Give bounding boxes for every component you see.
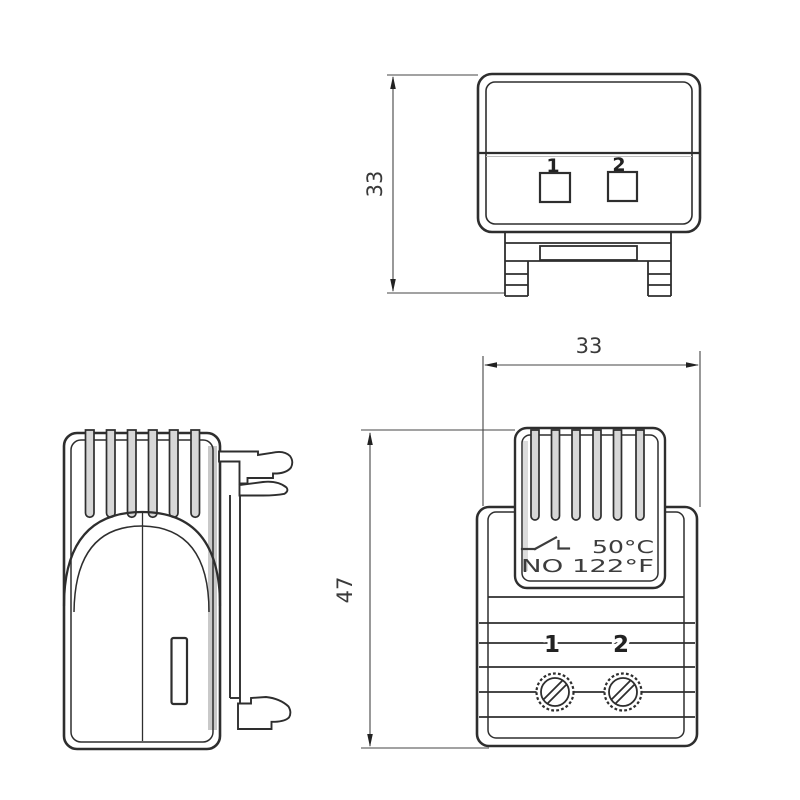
rating-fahrenheit-label: NO 122°F bbox=[521, 556, 654, 577]
rating-celsius-label: 50°C bbox=[592, 537, 654, 558]
arrowhead-up bbox=[390, 76, 396, 89]
bottom-clip-hook bbox=[238, 697, 290, 729]
arrowhead-right bbox=[686, 362, 699, 368]
din-clip-side-view bbox=[219, 452, 292, 730]
arrowhead-down bbox=[390, 279, 396, 292]
width-dimension-label: 33 bbox=[576, 334, 603, 358]
arrowhead-up bbox=[367, 432, 373, 445]
front-terminal-1-label: 1 bbox=[544, 632, 560, 658]
arrowhead-down bbox=[367, 734, 373, 747]
technical-drawing-canvas: 33 1 2 bbox=[0, 0, 800, 800]
side-view bbox=[64, 430, 292, 749]
top-clip-pawl bbox=[240, 482, 288, 496]
terminal-square-2 bbox=[608, 172, 637, 201]
terminal-screw-2 bbox=[605, 674, 642, 711]
top-clip-hook bbox=[219, 452, 292, 484]
top-terminal-2-label: 2 bbox=[612, 154, 625, 176]
thermostat-three-view-drawing: 33 1 2 bbox=[0, 0, 800, 800]
depth-dimension-label: 33 bbox=[363, 171, 387, 198]
front-terminal-2-label: 2 bbox=[613, 632, 629, 658]
height-dimension-label: 47 bbox=[333, 577, 357, 604]
top-terminal-1-label: 1 bbox=[546, 155, 559, 177]
top-view: 33 1 2 bbox=[363, 74, 700, 296]
terminal-square-1 bbox=[540, 173, 570, 202]
din-clip-top-view bbox=[505, 233, 671, 296]
head-shading bbox=[523, 441, 528, 571]
side-window-slot bbox=[172, 638, 188, 704]
terminal-screw-1 bbox=[537, 674, 574, 711]
arrowhead-left bbox=[484, 362, 497, 368]
front-view: 33 47 bbox=[333, 334, 700, 748]
